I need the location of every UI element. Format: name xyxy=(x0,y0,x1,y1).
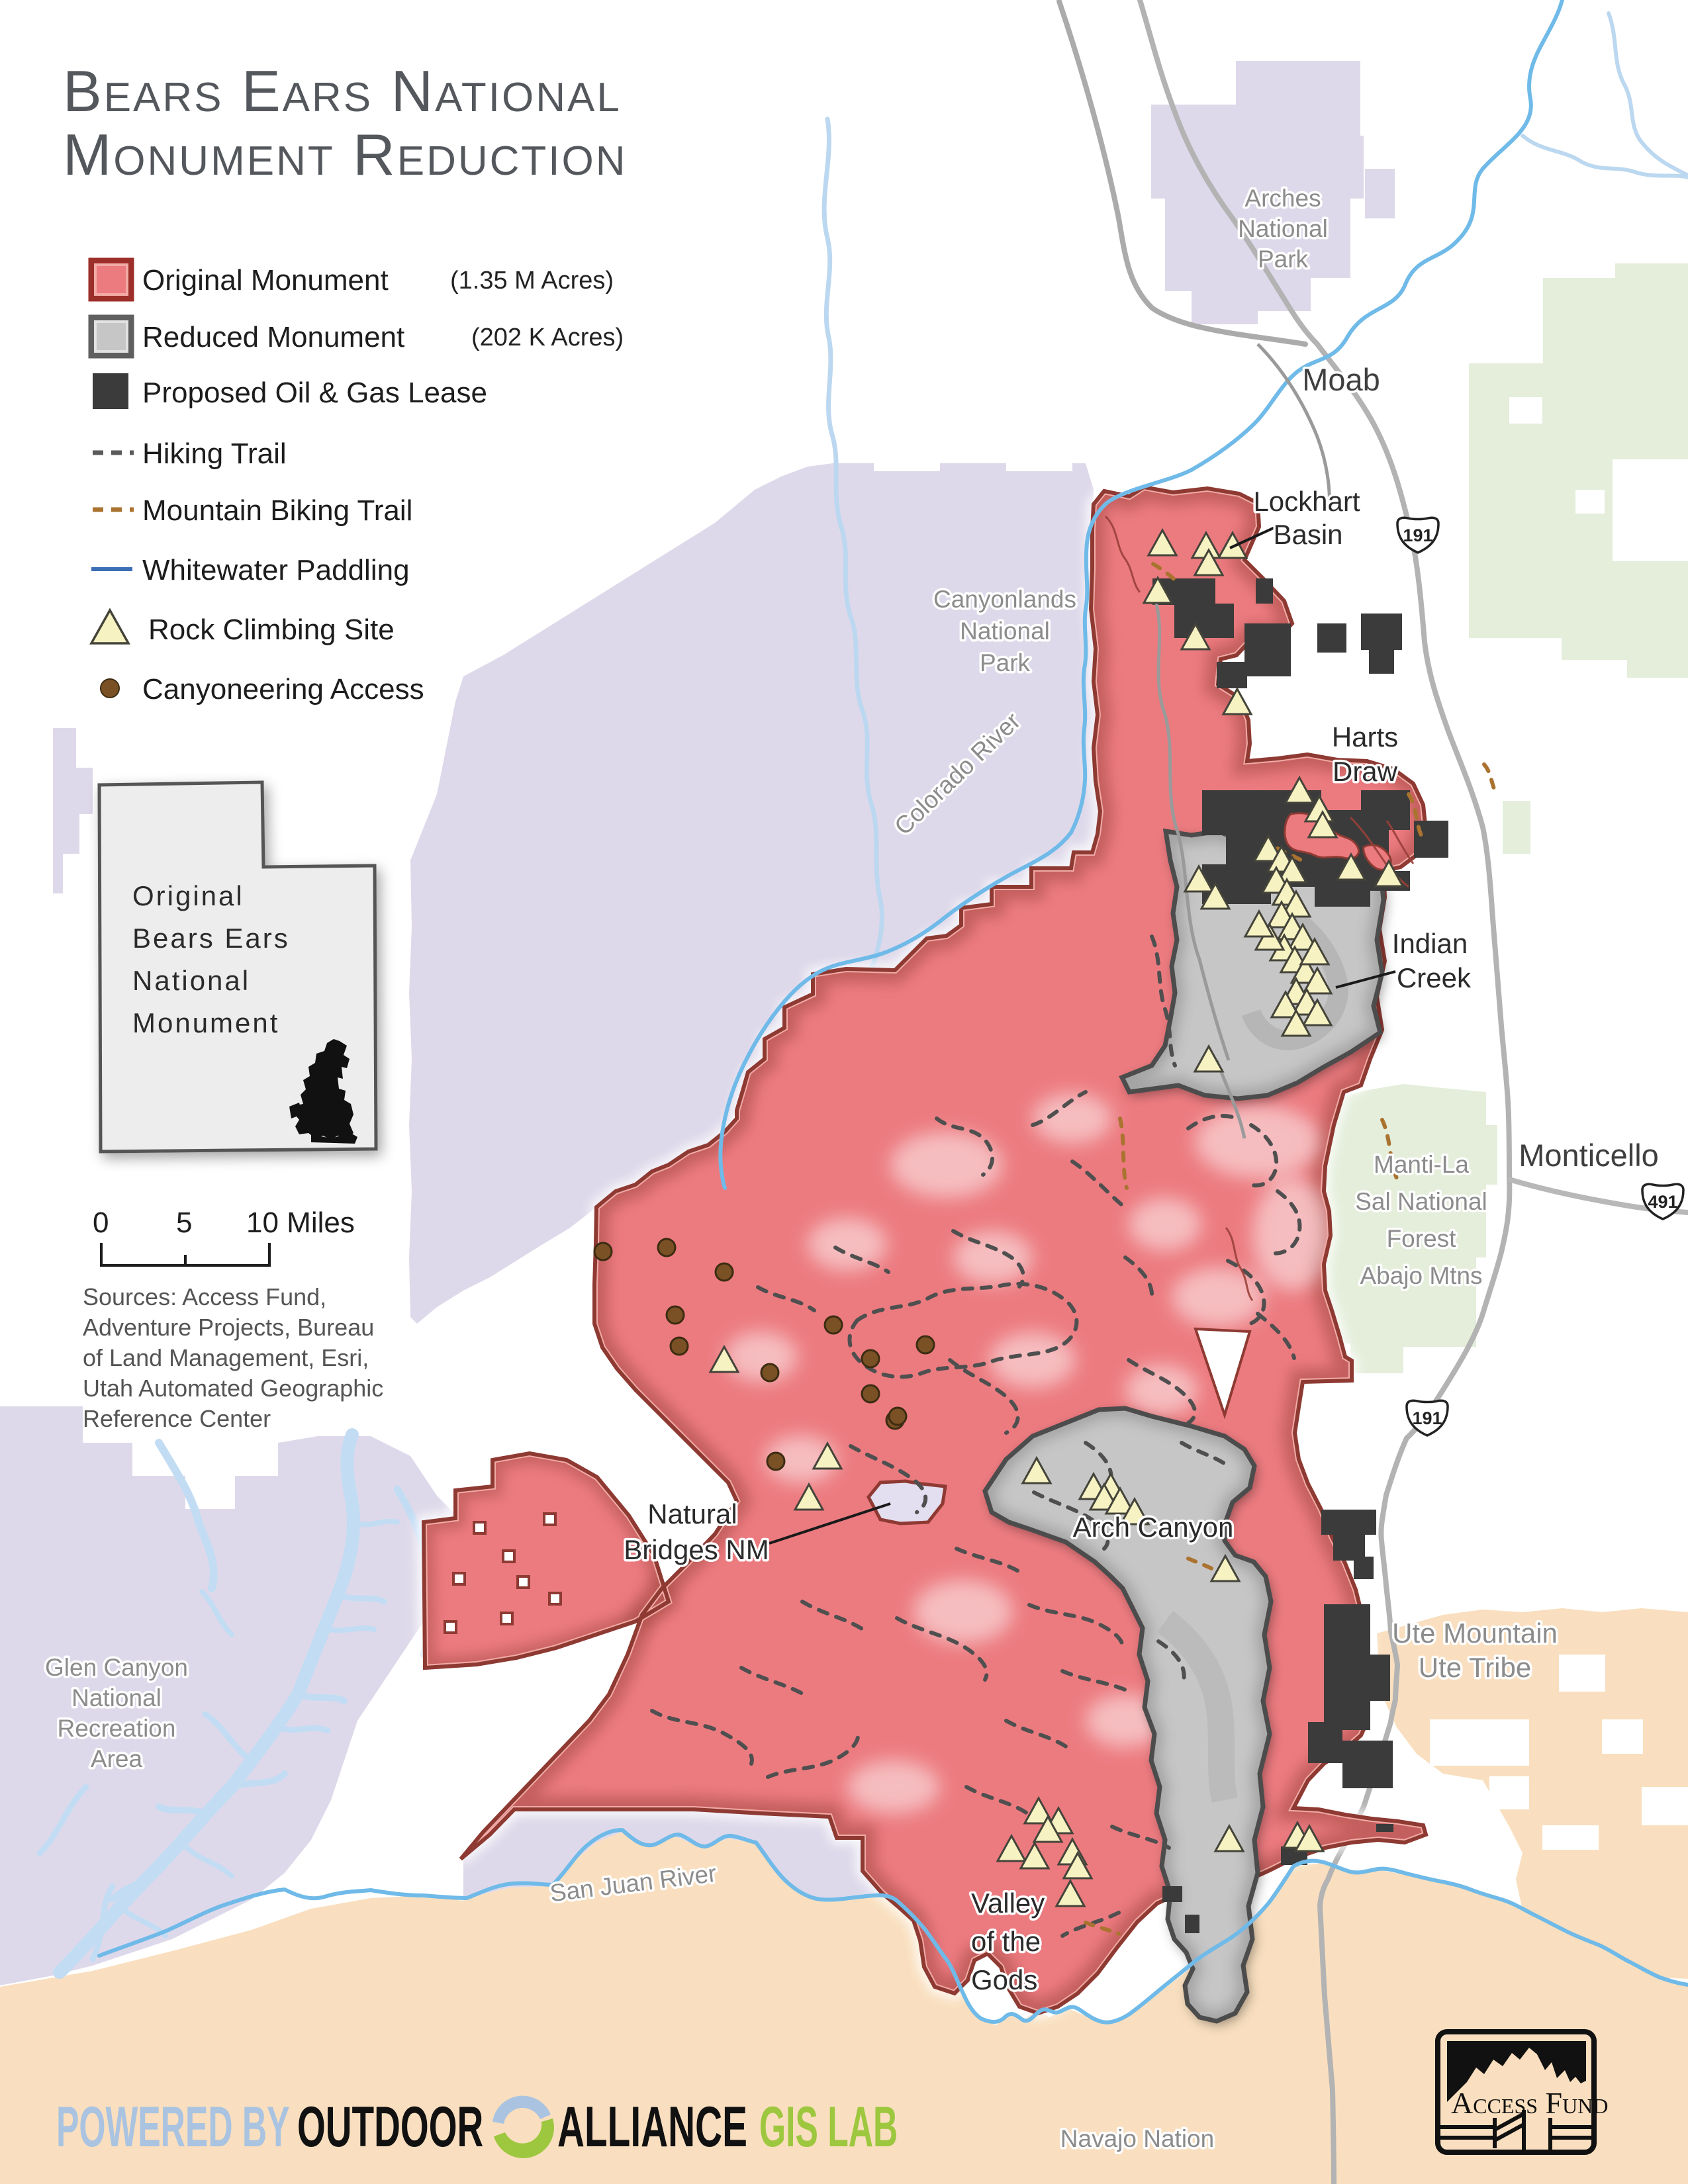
svg-text:Monument Reduction: Monument Reduction xyxy=(63,122,628,187)
svg-text:Reference Center: Reference Center xyxy=(83,1405,271,1432)
svg-text:Monticello: Monticello xyxy=(1519,1138,1659,1173)
svg-text:Draw: Draw xyxy=(1333,756,1398,787)
svg-text:Ute Tribe: Ute Tribe xyxy=(1419,1652,1531,1683)
svg-text:OUTDOOR: OUTDOOR xyxy=(297,2096,483,2159)
svg-text:0: 0 xyxy=(93,1206,109,1239)
svg-text:Arch Canyon: Arch Canyon xyxy=(1073,1512,1234,1543)
svg-text:of the: of the xyxy=(971,1926,1041,1957)
svg-text:Bears Ears: Bears Ears xyxy=(132,923,290,954)
svg-text:National: National xyxy=(1238,215,1328,242)
svg-text:Canyoneering Access: Canyoneering Access xyxy=(142,673,424,705)
svg-text:Natural: Natural xyxy=(647,1498,737,1529)
svg-text:Indian: Indian xyxy=(1392,928,1468,959)
svg-text:(202 K Acres): (202 K Acres) xyxy=(471,324,624,351)
svg-text:Bridges NM: Bridges NM xyxy=(624,1534,769,1565)
svg-text:191: 191 xyxy=(1403,525,1432,545)
svg-text:Reduced Monument: Reduced Monument xyxy=(142,321,404,353)
svg-text:Monument: Monument xyxy=(132,1007,279,1038)
svg-text:GIS LAB: GIS LAB xyxy=(759,2096,898,2160)
svg-text:491: 491 xyxy=(1648,1192,1677,1212)
svg-text:Hiking Trail: Hiking Trail xyxy=(142,437,287,470)
svg-text:Ute Mountain: Ute Mountain xyxy=(1392,1617,1558,1649)
svg-text:Access Fund: Access Fund xyxy=(1451,2086,1608,2120)
svg-text:(1.35 M Acres): (1.35 M Acres) xyxy=(450,267,614,295)
svg-text:Lockhart: Lockhart xyxy=(1253,486,1360,517)
svg-text:10 Miles: 10 Miles xyxy=(246,1206,355,1239)
svg-text:Proposed Oil & Gas Lease: Proposed Oil & Gas Lease xyxy=(142,377,487,409)
svg-text:POWERED BY: POWERED BY xyxy=(56,2096,290,2160)
svg-text:Rock Climbing Site: Rock Climbing Site xyxy=(148,614,395,646)
svg-text:Bears Ears National: Bears Ears National xyxy=(63,58,622,124)
svg-text:Forest: Forest xyxy=(1387,1225,1457,1252)
svg-text:Moab: Moab xyxy=(1302,362,1380,397)
svg-text:Canyonlands: Canyonlands xyxy=(933,586,1076,613)
svg-text:Navajo Nation: Navajo Nation xyxy=(1060,2125,1214,2152)
svg-text:Recreation: Recreation xyxy=(58,1715,176,1742)
svg-text:Park: Park xyxy=(980,649,1031,676)
svg-text:Gods: Gods xyxy=(971,1964,1037,1995)
svg-text:Utah Automated Geographic: Utah Automated Geographic xyxy=(83,1375,383,1402)
svg-text:191: 191 xyxy=(1412,1408,1442,1428)
svg-text:Sal National: Sal National xyxy=(1355,1188,1487,1215)
svg-text:Glen Canyon: Glen Canyon xyxy=(45,1654,188,1681)
svg-text:Whitewater Paddling: Whitewater Paddling xyxy=(142,554,410,586)
svg-text:ALLIANCE: ALLIANCE xyxy=(557,2095,747,2159)
svg-text:Area: Area xyxy=(91,1745,143,1772)
svg-text:of Land Management, Esri,: of Land Management, Esri, xyxy=(83,1344,369,1371)
svg-text:Original: Original xyxy=(132,880,244,911)
svg-text:5: 5 xyxy=(176,1206,192,1239)
svg-text:National: National xyxy=(71,1684,162,1711)
svg-text:Harts: Harts xyxy=(1332,721,1398,752)
svg-text:Sources: Access Fund,: Sources: Access Fund, xyxy=(83,1283,326,1310)
svg-text:Creek: Creek xyxy=(1397,962,1472,993)
svg-text:Basin: Basin xyxy=(1273,519,1342,550)
svg-text:National: National xyxy=(960,617,1050,645)
svg-text:Park: Park xyxy=(1258,246,1309,273)
svg-text:Arches: Arches xyxy=(1244,185,1321,212)
svg-text:National: National xyxy=(132,965,250,996)
svg-text:Valley: Valley xyxy=(971,1888,1045,1919)
svg-text:Mountain Biking Trail: Mountain Biking Trail xyxy=(142,494,412,527)
svg-text:Adventure Projects, Bureau: Adventure Projects, Bureau xyxy=(83,1314,374,1341)
svg-text:Original Monument: Original Monument xyxy=(142,264,389,296)
svg-text:Abajo Mtns: Abajo Mtns xyxy=(1360,1262,1482,1289)
svg-text:Manti-La: Manti-La xyxy=(1374,1151,1469,1178)
